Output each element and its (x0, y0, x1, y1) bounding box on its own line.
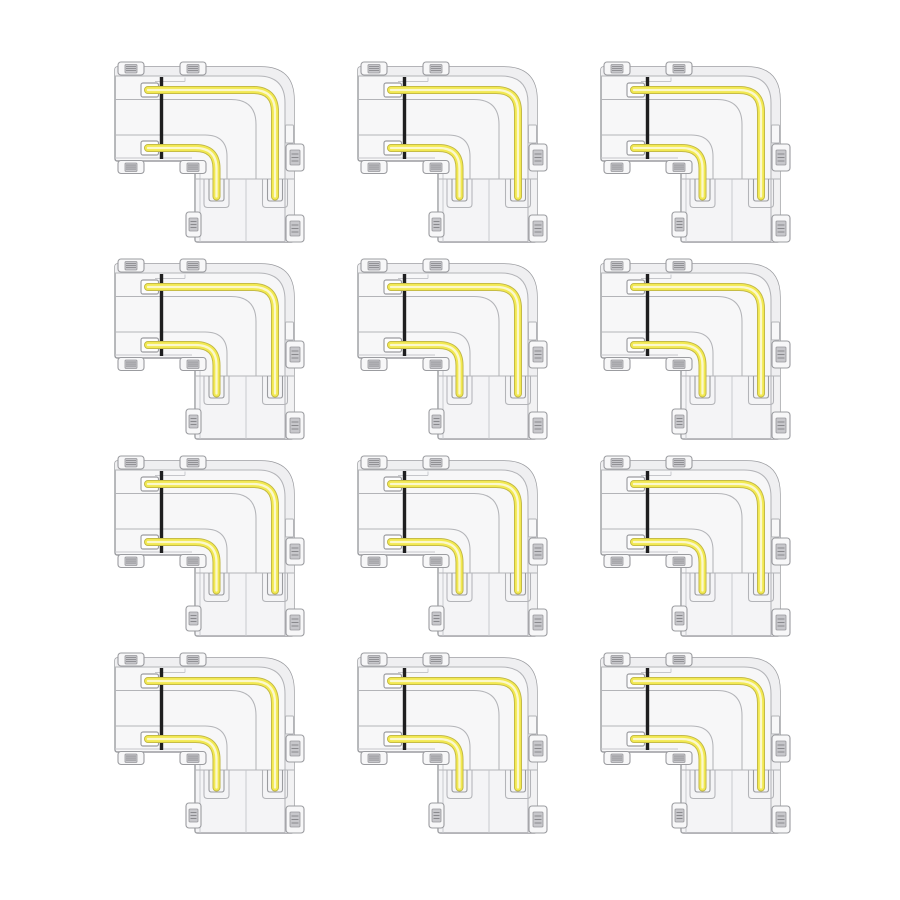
l-shape-corner-connector-item (346, 55, 550, 254)
l-connector-graphic (601, 456, 790, 636)
l-connector-graphic (601, 653, 790, 833)
l-shape-corner-connector-item (103, 55, 307, 254)
l-connector-graphic (115, 259, 304, 439)
l-connector-graphic (358, 259, 547, 439)
l-connector-graphic (358, 653, 547, 833)
l-shape-corner-connector-item (589, 55, 793, 254)
l-connector-graphic (115, 62, 304, 242)
l-connector-graphic (358, 456, 547, 636)
l-shape-corner-connector-item (103, 646, 307, 845)
l-connector-graphic (601, 62, 790, 242)
l-shape-corner-connector-item (589, 646, 793, 845)
l-shape-corner-connector-item (103, 449, 307, 648)
l-shape-corner-connector-item (346, 646, 550, 845)
product-image-canvas (0, 0, 900, 900)
l-shape-corner-connector-item (346, 252, 550, 451)
l-shape-corner-connector-item (346, 449, 550, 648)
l-connector-graphic (115, 653, 304, 833)
l-connector-graphic (601, 259, 790, 439)
l-shape-corner-connector-item (103, 252, 307, 451)
l-shape-corner-connector-item (589, 449, 793, 648)
l-connector-graphic (115, 456, 304, 636)
l-connector-graphic (358, 62, 547, 242)
l-shape-corner-connector-item (589, 252, 793, 451)
